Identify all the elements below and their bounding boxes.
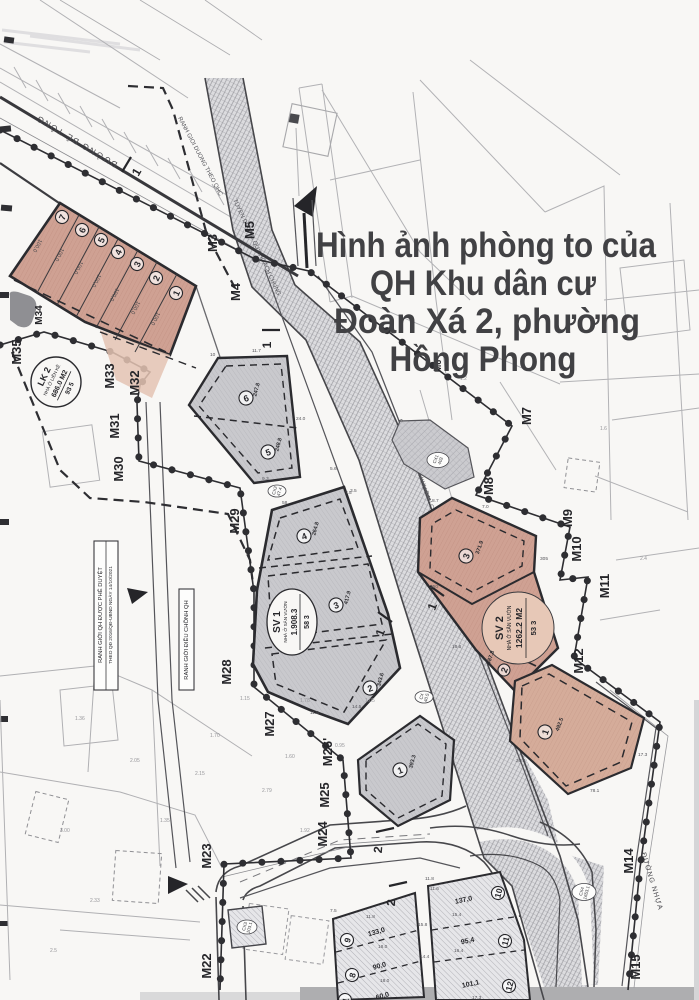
svg-text:15.4: 15.4: [452, 912, 462, 918]
svg-text:16.4: 16.4: [454, 948, 464, 954]
svg-text:M30: M30: [111, 456, 126, 481]
svg-text:M12: M12: [571, 648, 586, 673]
svg-text:M34: M34: [34, 305, 45, 325]
svg-text:14.4: 14.4: [420, 954, 430, 960]
svg-text:14.5: 14.5: [352, 704, 362, 710]
svg-text:3.00: 3.00: [60, 828, 70, 834]
svg-text:THEO QĐ 2016/QĐ-UBND NGÀY 14/1: THEO QĐ 2016/QĐ-UBND NGÀY 14/10/2021: [107, 566, 114, 664]
svg-text:11.7: 11.7: [252, 348, 261, 354]
svg-text:M7: M7: [519, 407, 534, 425]
svg-text:Đoàn Xá 2, phường: Đoàn Xá 2, phường: [334, 302, 640, 341]
svg-text:2.05: 2.05: [130, 758, 140, 764]
svg-text:58 3: 58 3: [304, 615, 311, 629]
svg-text:10: 10: [210, 352, 216, 358]
svg-text:M8: M8: [481, 477, 496, 495]
svg-text:M14: M14: [621, 848, 636, 874]
svg-text:9.3: 9.3: [262, 476, 269, 482]
svg-text:1.78: 1.78: [300, 698, 310, 704]
svg-text:M22: M22: [199, 953, 214, 978]
svg-text:1: 1: [260, 341, 274, 348]
svg-text:11.5: 11.5: [310, 710, 319, 716]
svg-text:1.92: 1.92: [300, 828, 310, 834]
svg-text:16.6: 16.6: [452, 644, 462, 650]
svg-text:53 3: 53 3: [529, 621, 538, 636]
svg-text:M31: M31: [107, 413, 122, 438]
svg-text:M27: M27: [262, 711, 277, 736]
svg-text:78.1: 78.1: [590, 788, 600, 794]
svg-text:M3: M3: [205, 234, 220, 252]
svg-text:1.35: 1.35: [160, 818, 170, 824]
svg-text:8.7: 8.7: [432, 498, 439, 504]
svg-text:1.05: 1.05: [365, 698, 375, 704]
svg-text:11.6: 11.6: [430, 886, 439, 892]
svg-text:Hình ảnh phòng to của: Hình ảnh phòng to của: [316, 226, 656, 265]
svg-text:M32: M32: [127, 370, 142, 395]
svg-text:24.0: 24.0: [296, 416, 306, 422]
svg-text:M23: M23: [199, 843, 214, 868]
svg-text:7.0: 7.0: [482, 504, 489, 510]
svg-text:11.8: 11.8: [425, 876, 434, 882]
svg-text:30.2: 30.2: [516, 758, 526, 764]
svg-text:M35: M35: [9, 339, 24, 364]
svg-text:RANH GIỚI QH ĐƯỢC PHÊ DUYỆT: RANH GIỚI QH ĐƯỢC PHÊ DUYỆT: [96, 567, 104, 663]
svg-text:Hồng Phong: Hồng Phong: [390, 340, 577, 379]
svg-text:17.3: 17.3: [638, 752, 648, 758]
svg-text:15.8: 15.8: [418, 922, 428, 928]
svg-text:1.70: 1.70: [210, 733, 220, 739]
svg-text:SV 2: SV 2: [494, 616, 506, 640]
svg-text:2.33: 2.33: [90, 898, 100, 904]
svg-text:2.79: 2.79: [262, 788, 272, 794]
svg-text:M25: M25: [317, 782, 332, 807]
svg-text:2.15: 2.15: [195, 771, 205, 777]
svg-text:17.3: 17.3: [472, 995, 482, 1000]
svg-text:305: 305: [540, 556, 548, 562]
svg-text:M33: M33: [102, 363, 117, 388]
svg-text:350: 350: [430, 584, 438, 590]
svg-text:0.95: 0.95: [335, 743, 345, 749]
svg-text:2.5: 2.5: [50, 948, 57, 954]
svg-text:1262.2 M2: 1262.2 M2: [514, 608, 524, 648]
svg-text:1.15: 1.15: [240, 696, 250, 702]
svg-text:1.36: 1.36: [75, 716, 85, 722]
svg-text:5.6: 5.6: [330, 466, 337, 472]
svg-text:M26': M26': [320, 738, 335, 766]
svg-text:M4: M4: [228, 282, 243, 301]
svg-text:1.6: 1.6: [600, 426, 607, 432]
svg-text:M5: M5: [242, 221, 257, 239]
svg-text:1.60: 1.60: [285, 754, 295, 760]
svg-text:58: 58: [282, 500, 288, 506]
svg-text:M15: M15: [628, 954, 643, 979]
svg-text:M24: M24: [315, 821, 330, 847]
svg-text:18.0: 18.0: [378, 944, 388, 950]
svg-text:QH Khu dân cư: QH Khu dân cư: [370, 264, 597, 303]
svg-text:NHÀ Ở SÂN VƯỜN: NHÀ Ở SÂN VƯỜN: [282, 601, 288, 642]
svg-text:2.4: 2.4: [640, 556, 647, 562]
svg-text:M9: M9: [560, 509, 575, 527]
svg-text:M10: M10: [569, 536, 584, 561]
svg-text:7.5: 7.5: [345, 490, 352, 496]
svg-text:RANH GIỚI ĐIỀU CHỒNH QH: RANH GIỚI ĐIỀU CHỒNH QH: [183, 600, 190, 679]
svg-text:M28: M28: [219, 659, 234, 684]
svg-text:M29: M29: [227, 508, 242, 533]
svg-text:11.8: 11.8: [366, 914, 375, 920]
svg-text:NHÀ Ở SÂN VƯỜN: NHÀ Ở SÂN VƯỜN: [506, 605, 513, 650]
svg-text:1.908.3: 1.908.3: [290, 608, 299, 635]
svg-text:SV 1: SV 1: [272, 611, 283, 633]
svg-text:18.0: 18.0: [380, 978, 390, 984]
svg-text:M11: M11: [597, 574, 612, 599]
svg-text:7.5: 7.5: [330, 908, 337, 914]
